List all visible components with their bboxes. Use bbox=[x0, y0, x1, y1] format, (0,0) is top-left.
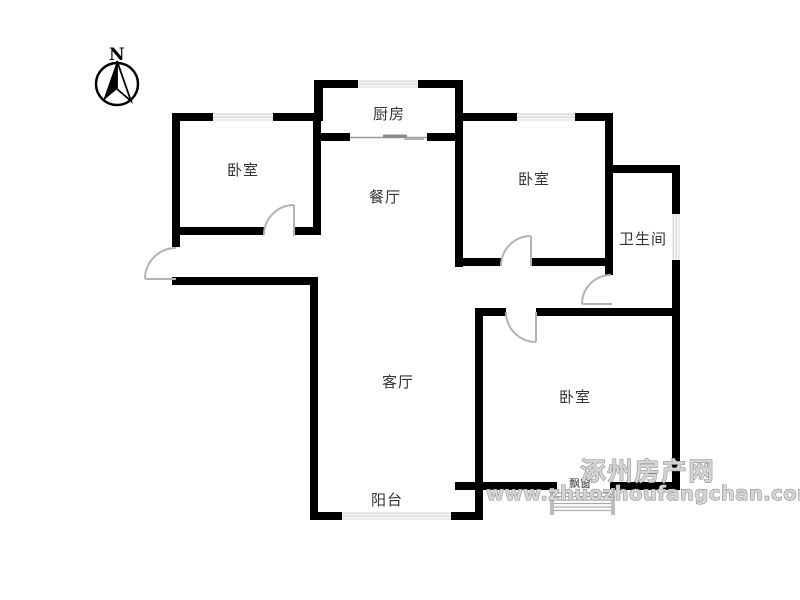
doors bbox=[145, 205, 612, 342]
wall bbox=[313, 113, 321, 235]
wall bbox=[310, 512, 342, 520]
kitchen-sliding-door bbox=[350, 135, 427, 141]
door-bathroom bbox=[582, 275, 612, 304]
door-bedroom-top-left bbox=[264, 205, 294, 236]
wall bbox=[605, 113, 613, 275]
watermark: 涿州房产网 www.zhuozhoufangchan.com bbox=[486, 457, 800, 505]
wall bbox=[463, 258, 501, 266]
label-bedroom-top-left: 卧室 bbox=[227, 161, 259, 179]
watermark-site-url: www.zhuozhoufangchan.com bbox=[486, 482, 800, 505]
window-balcony bbox=[342, 513, 451, 520]
wall bbox=[672, 260, 680, 316]
compass: N bbox=[96, 45, 138, 105]
wall bbox=[314, 80, 358, 88]
wall bbox=[613, 165, 680, 173]
window-bedroom-top-left bbox=[213, 114, 273, 121]
label-bedroom-bottom: 卧室 bbox=[559, 388, 591, 406]
wall bbox=[536, 308, 680, 316]
entry-door bbox=[145, 248, 176, 279]
wall bbox=[273, 113, 320, 121]
floor-plan: N bbox=[0, 0, 800, 600]
label-bathroom: 卫生间 bbox=[619, 230, 667, 248]
wall bbox=[310, 277, 318, 520]
label-dining-room: 餐厅 bbox=[369, 188, 401, 206]
label-bedroom-top-right: 卧室 bbox=[518, 170, 550, 188]
wall bbox=[451, 512, 483, 520]
door-bedroom-bottom bbox=[506, 312, 536, 342]
wall bbox=[172, 227, 265, 235]
wall bbox=[672, 165, 680, 214]
sliding-door-panel bbox=[404, 138, 424, 141]
label-kitchen: 厨房 bbox=[373, 105, 405, 123]
window-kitchen bbox=[358, 81, 418, 88]
wall bbox=[172, 113, 180, 235]
room-labels: 卧室 厨房 餐厅 卧室 卫生间 客厅 卧室 阳台 飘窗 bbox=[227, 105, 667, 509]
wall bbox=[172, 227, 180, 247]
wall bbox=[463, 113, 517, 121]
walls bbox=[172, 80, 680, 520]
door-bedroom-top-right bbox=[501, 236, 531, 266]
label-balcony: 阳台 bbox=[371, 491, 403, 509]
wall bbox=[314, 133, 350, 141]
sliding-door-panel bbox=[383, 135, 407, 138]
wall bbox=[172, 277, 318, 285]
window-bathroom bbox=[673, 214, 680, 260]
label-living-room: 客厅 bbox=[382, 373, 414, 391]
window-bedroom-top-right bbox=[517, 114, 575, 121]
wall bbox=[427, 133, 463, 141]
wall bbox=[531, 258, 613, 266]
wall bbox=[455, 80, 463, 267]
